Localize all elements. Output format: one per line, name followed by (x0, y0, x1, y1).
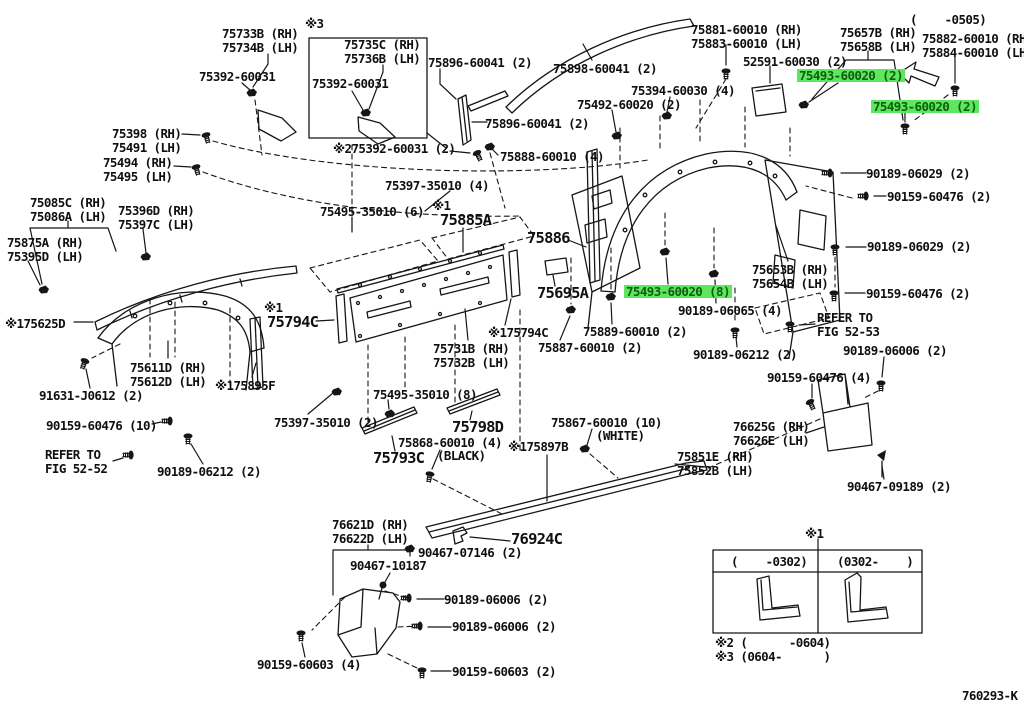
part-label-75695a: 75695A (537, 286, 588, 301)
part-label-75491: 75491 (LH) (112, 141, 181, 154)
table-col-header-pre0302: ( -0302) (731, 555, 807, 568)
table-note-mark2: ※2 ( -0604) (715, 636, 830, 649)
part-label-75794c: 75794C (267, 315, 318, 330)
part-label-90159-60476-4: 90159-60476 (4) (767, 371, 871, 384)
part-label-90159-60476-10: 90159-60476 (10) (46, 419, 157, 432)
part-label-91631: 91631-J0612 (2) (39, 389, 143, 402)
part-label-75397c: 75397C (LH) (118, 218, 194, 231)
part-label-75493-highlight-1[interactable]: 75493-60020 (2) (797, 69, 905, 82)
part-label-75397-35010-4: 75397-35010 (4) (385, 179, 489, 192)
part-label-90189-06212-center: 90189-06212 (2) (693, 348, 797, 361)
part-label-75881: 75881-60010 (RH) (691, 23, 802, 36)
part-label-75392-ref2: ※275392-60031 (2) (333, 142, 455, 155)
part-label-75611d: 75611D (RH) (130, 361, 206, 374)
part-label-75492: 75492-60020 (2) (577, 98, 681, 111)
part-label-75493-highlight-2[interactable]: 75493-60020 (2) (871, 100, 979, 113)
part-label-75875a: 75875A (RH) (7, 236, 83, 249)
part-label-75887: 75887-60010 (2) (538, 341, 642, 354)
color-note-white: (WHITE) (596, 429, 644, 442)
part-label-175794c: ※175794C (488, 326, 548, 339)
part-label-76621d: 76621D (RH) (332, 518, 408, 531)
part-label-175897b: ※175897B (508, 440, 568, 453)
part-label-75898: 75898-60041 (2) (553, 62, 657, 75)
part-label-75495-35010-8: 75495-35010 (8) (373, 388, 477, 401)
part-label-76625g: 76625G (RH) (733, 420, 809, 433)
part-label-75086a: 75086A (LH) (30, 210, 106, 223)
part-label-75884: 75884-60010 (LH) (922, 46, 1024, 59)
part-label-75653b: 75653B (RH) (752, 263, 828, 276)
part-label-75493-highlight-8[interactable]: 75493-60020 (8) (624, 285, 732, 298)
part-label-75732b: 75732B (LH) (433, 356, 509, 369)
part-label-75733b: 75733B (RH) (222, 27, 298, 40)
part-label-75495-35010-6: 75495-35010 (6) (320, 205, 424, 218)
part-label-90159-60603-4: 90159-60603 (4) (257, 658, 361, 671)
part-label-90189-06212-left: 90189-06212 (2) (157, 465, 261, 478)
part-label-175625d: ※175625D (5, 317, 65, 330)
part-label-75888: 75888-60010 (4) (500, 150, 604, 163)
date-range-0505: ( -0505) (910, 13, 986, 26)
part-label-75793c: 75793C (373, 451, 424, 466)
part-label-75396d: 75396D (RH) (118, 204, 194, 217)
table-col-header-post0302: (0302- ) (837, 555, 913, 568)
part-label-75882: 75882-60010 (RH) (922, 32, 1024, 45)
ref-mark-3: ※3 (305, 17, 323, 30)
part-label-75731b: 75731B (RH) (433, 342, 509, 355)
refer-note-5253-line1: REFER TO (817, 311, 872, 324)
part-label-75734b: 75734B (LH) (222, 41, 298, 54)
part-label-75612d: 75612D (LH) (130, 375, 206, 388)
part-label-75657b: 75657B (RH) (840, 26, 916, 39)
part-label-90189-06029-a: 90189-06029 (2) (866, 167, 970, 180)
part-label-75398: 75398 (RH) (112, 127, 181, 140)
part-label-90159-60603-2: 90159-60603 (2) (452, 665, 556, 678)
part-label-75392-box: 75392-60031 (312, 77, 388, 90)
part-label-90467-09189: 90467-09189 (2) (847, 480, 951, 493)
part-label-75735c: 75735C (RH) (344, 38, 420, 51)
part-label-75494: 75494 (RH) (103, 156, 172, 169)
part-label-75798d: 75798D (452, 420, 503, 435)
part-label-75852b: 75852B (LH) (677, 464, 753, 477)
part-label-75886: 75886 (527, 231, 570, 246)
part-label-75654b: 75654B (LH) (752, 277, 828, 290)
part-label-75896-upper: 75896-60041 (2) (428, 56, 532, 69)
part-label-76924c: 76924C (511, 532, 562, 547)
part-label-90189-06006-right: 90189-06006 (2) (843, 344, 947, 357)
ref-mark-1-table: ※1 (805, 527, 823, 540)
doc-code: 760293-K (962, 689, 1017, 702)
part-label-75495: 75495 (LH) (103, 170, 172, 183)
part-label-75397-35010-2: 75397-35010 (2) (274, 416, 378, 429)
part-label-90189-06029-b: 90189-06029 (2) (867, 240, 971, 253)
part-label-90467-07146: 90467-07146 (2) (418, 546, 522, 559)
refer-note-5253-line2: FIG 52-53 (817, 325, 879, 338)
part-label-76626e: 76626E (LH) (733, 434, 809, 447)
table-note-mark3: ※3 (0604- ) (715, 650, 830, 663)
color-note-black: (BLACK) (437, 449, 485, 462)
parts-diagram-page: 75733B (RH) 75734B (LH) ※3 75735C (RH) 7… (0, 0, 1024, 707)
part-label-75392-left: 75392-60031 (199, 70, 275, 83)
part-label-175895f: ※175895F (215, 379, 275, 392)
part-label-75896-lower: 75896-60041 (2) (485, 117, 589, 130)
part-label-90189-06006-b1: 90189-06006 (2) (444, 593, 548, 606)
refer-note-5252-line2: FIG 52-52 (45, 462, 107, 475)
part-label-75851e: 75851E (RH) (677, 450, 753, 463)
part-label-75885a: 75885A (440, 213, 491, 228)
part-label-90189-06006-b2: 90189-06006 (2) (452, 620, 556, 633)
part-label-75395d: 75395D (LH) (7, 250, 83, 263)
part-label-76622d: 76622D (LH) (332, 532, 408, 545)
part-label-75889: 75889-60010 (2) (583, 325, 687, 338)
part-label-52591: 52591-60030 (2) (743, 55, 847, 68)
part-label-90467-10187: 90467-10187 (350, 559, 426, 572)
part-label-90189-06065: 90189-06065 (4) (678, 304, 782, 317)
part-label-75658b: 75658B (LH) (840, 40, 916, 53)
part-label-90159-60476-2b: 90159-60476 (2) (866, 287, 970, 300)
refer-note-5252-line1: REFER TO (45, 448, 100, 461)
part-label-75085c: 75085C (RH) (30, 196, 106, 209)
part-label-90159-60476-2a: 90159-60476 (2) (887, 190, 991, 203)
part-label-75736b: 75736B (LH) (344, 52, 420, 65)
part-label-75394: 75394-60030 (4) (631, 84, 735, 97)
part-label-75883: 75883-60010 (LH) (691, 37, 802, 50)
